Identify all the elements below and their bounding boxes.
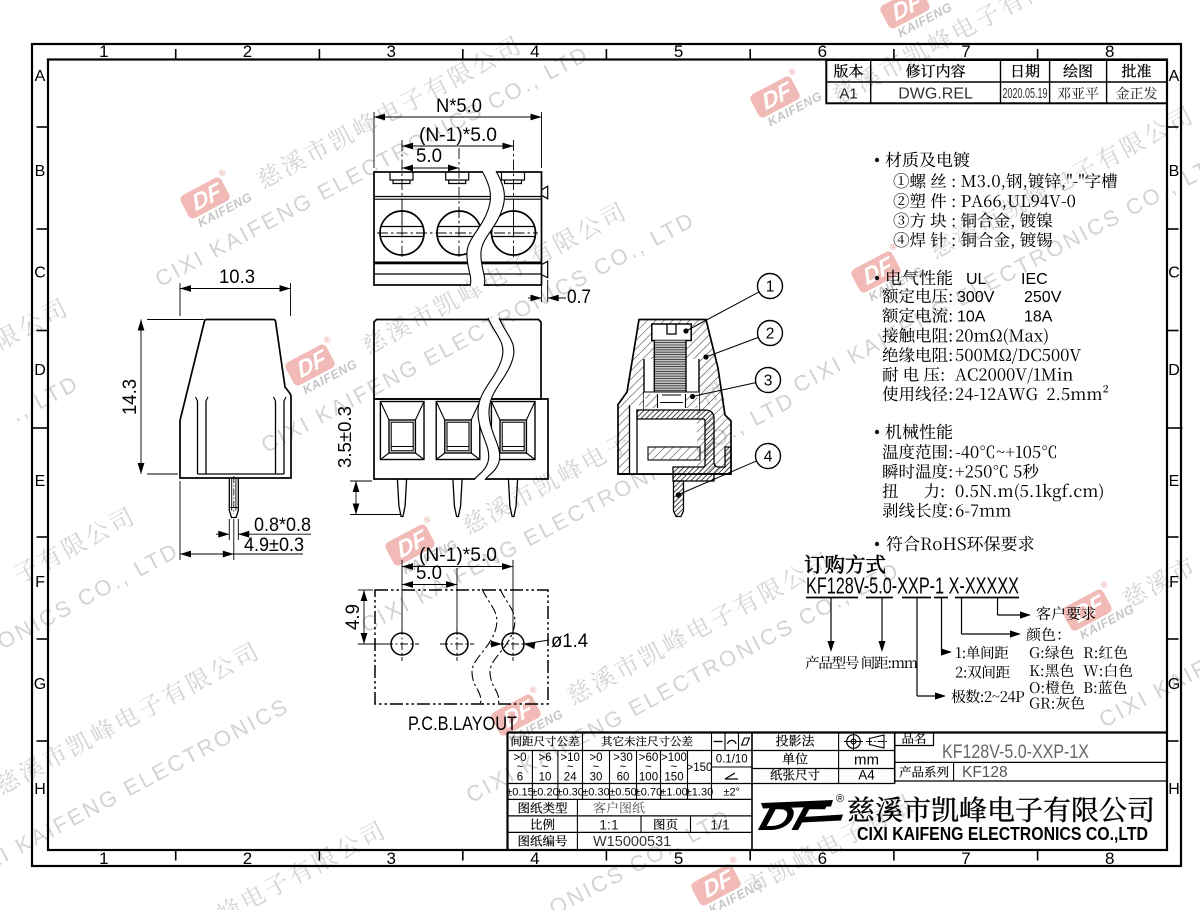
svg-text:±0.20: ±0.20 xyxy=(531,787,558,799)
svg-text:4: 4 xyxy=(530,42,539,61)
svg-text:±0.30: ±0.30 xyxy=(556,787,583,799)
svg-text:KF128: KF128 xyxy=(962,764,1008,781)
svg-text:A4: A4 xyxy=(858,768,875,783)
svg-text:H: H xyxy=(34,781,46,798)
svg-text:10: 10 xyxy=(539,772,552,784)
svg-text:4: 4 xyxy=(764,449,773,466)
svg-text:CIXI KAIFENG ELECTRONICS CO.,L: CIXI KAIFENG ELECTRONICS CO.,LTD xyxy=(857,823,1148,844)
svg-text:±1.00: ±1.00 xyxy=(660,787,687,799)
svg-text:14.3: 14.3 xyxy=(119,379,141,415)
svg-text:5: 5 xyxy=(674,42,683,61)
svg-text:G: G xyxy=(1168,676,1180,693)
svg-text:4: 4 xyxy=(530,849,539,868)
svg-text:D: D xyxy=(1168,362,1180,379)
svg-text:±0.50: ±0.50 xyxy=(609,787,636,799)
svg-text:±0.15: ±0.15 xyxy=(506,787,533,799)
svg-text:mm: mm xyxy=(854,752,879,769)
svg-text:7: 7 xyxy=(961,849,970,868)
svg-text:8: 8 xyxy=(1105,42,1114,61)
svg-text:30: 30 xyxy=(590,772,603,784)
svg-text:60: 60 xyxy=(617,772,630,784)
svg-text:24: 24 xyxy=(564,772,577,784)
svg-text:2020.05.19: 2020.05.19 xyxy=(1003,86,1048,102)
svg-text:1: 1 xyxy=(766,279,775,296)
svg-text:0.7: 0.7 xyxy=(567,286,591,308)
svg-text:5.0: 5.0 xyxy=(416,562,442,584)
svg-text:E: E xyxy=(1169,473,1180,490)
svg-text:IEC: IEC xyxy=(1021,271,1048,288)
svg-text:ø1.4: ø1.4 xyxy=(551,630,588,652)
svg-text:B: B xyxy=(35,163,46,180)
svg-text:6: 6 xyxy=(818,42,827,61)
svg-text:0.8*0.8: 0.8*0.8 xyxy=(254,514,311,536)
svg-text:300V: 300V xyxy=(957,289,995,306)
svg-text:5.0: 5.0 xyxy=(416,145,442,167)
svg-text:H: H xyxy=(1168,781,1180,798)
svg-text:UL: UL xyxy=(966,271,987,288)
svg-text:2: 2 xyxy=(243,849,252,868)
svg-text:6: 6 xyxy=(818,849,827,868)
svg-text:5: 5 xyxy=(674,849,683,868)
svg-text:3: 3 xyxy=(386,849,395,868)
svg-text:®: ® xyxy=(836,793,844,805)
svg-text:P.C.B.LAYOUT: P.C.B.LAYOUT xyxy=(408,713,517,735)
svg-text:10A: 10A xyxy=(957,309,986,326)
svg-text:DWG.REL: DWG.REL xyxy=(898,86,973,103)
svg-text:KF128V-5.0-XXP-1X: KF128V-5.0-XXP-1X xyxy=(942,742,1089,763)
svg-text:18A: 18A xyxy=(1024,309,1053,326)
svg-text:100: 100 xyxy=(639,772,658,784)
svg-text:D: D xyxy=(34,362,46,379)
svg-text:(N-1)*5.0: (N-1)*5.0 xyxy=(419,124,497,146)
svg-text:E: E xyxy=(35,473,46,490)
svg-text:1: 1 xyxy=(99,849,108,868)
svg-text:7: 7 xyxy=(961,42,970,61)
svg-text:>150: >150 xyxy=(687,762,713,774)
svg-text:±0.70: ±0.70 xyxy=(635,787,662,799)
svg-text:3.5±0.3: 3.5±0.3 xyxy=(334,406,355,468)
svg-text:1/1: 1/1 xyxy=(710,817,730,833)
svg-text:250V: 250V xyxy=(1024,289,1062,306)
svg-text:±0.30: ±0.30 xyxy=(582,787,609,799)
svg-text:A: A xyxy=(35,68,46,85)
svg-text:B: B xyxy=(1169,163,1180,180)
svg-text:3: 3 xyxy=(386,42,395,61)
svg-text:±1.30: ±1.30 xyxy=(686,787,713,799)
svg-text:W15000531: W15000531 xyxy=(593,834,671,850)
svg-text:3: 3 xyxy=(764,373,773,390)
svg-text:10.3: 10.3 xyxy=(219,266,255,288)
svg-text:0.1/10: 0.1/10 xyxy=(716,754,748,766)
svg-text:N*5.0: N*5.0 xyxy=(436,95,482,117)
svg-text:KF128V-5.0-XXP-1 X-XXXXX: KF128V-5.0-XXP-1 X-XXXXX xyxy=(806,573,1019,599)
svg-text:2: 2 xyxy=(766,326,775,343)
svg-text:1: 1 xyxy=(99,42,108,61)
svg-text:1:1: 1:1 xyxy=(599,817,619,833)
svg-text:2: 2 xyxy=(243,42,252,61)
svg-text:150: 150 xyxy=(664,772,683,784)
svg-text:4.9±0.3: 4.9±0.3 xyxy=(244,534,304,556)
svg-text:4.9: 4.9 xyxy=(342,604,364,630)
svg-text:C: C xyxy=(1168,265,1180,282)
svg-text:±2°: ±2° xyxy=(723,787,740,799)
svg-text:F: F xyxy=(35,574,45,591)
svg-text:6: 6 xyxy=(517,772,523,784)
svg-text:A1: A1 xyxy=(839,86,857,103)
svg-text:G: G xyxy=(34,676,46,693)
svg-text:C: C xyxy=(34,265,46,282)
svg-text:8: 8 xyxy=(1105,849,1114,868)
svg-text:A: A xyxy=(1169,68,1180,85)
svg-text:F: F xyxy=(1169,574,1179,591)
